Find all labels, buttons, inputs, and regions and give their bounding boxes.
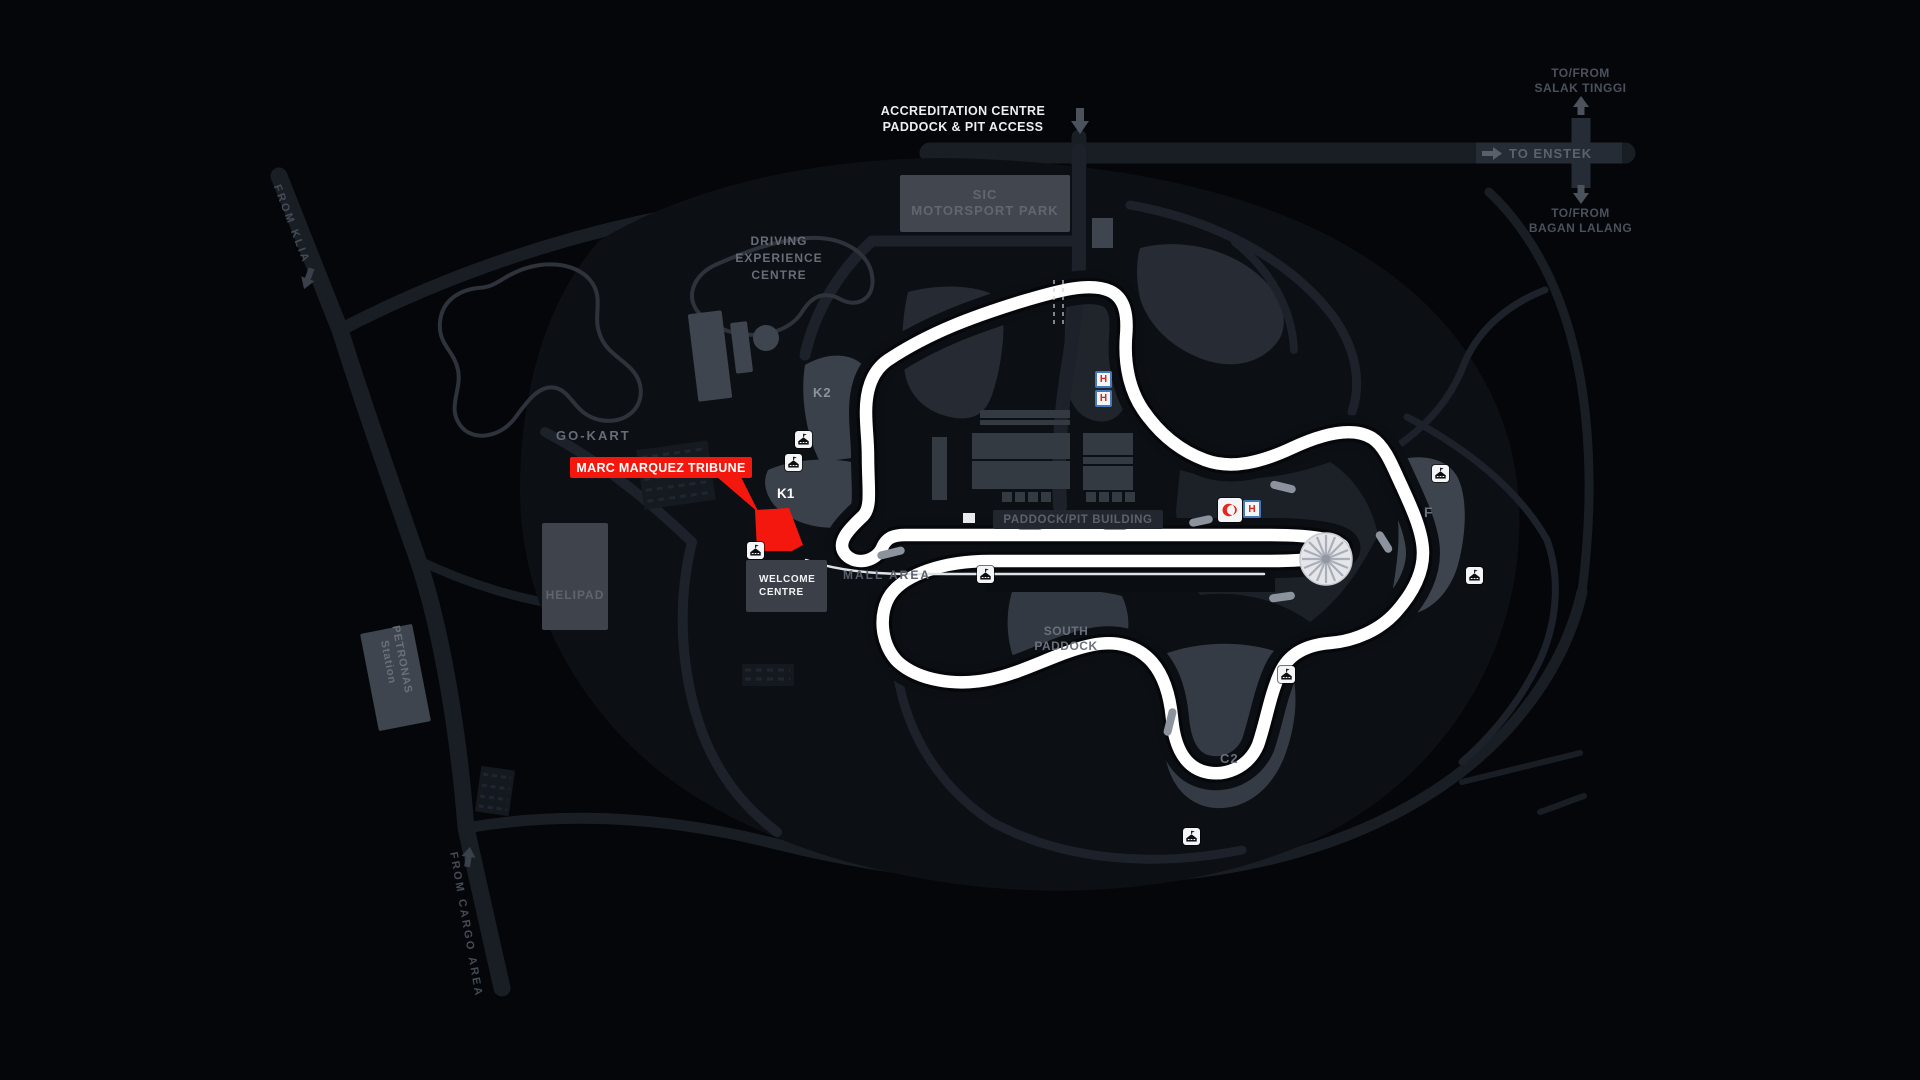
grandstand-icon[interactable] bbox=[1278, 666, 1295, 683]
helipad-label: HELIPAD bbox=[542, 588, 608, 602]
marc-marquez-tribune-label[interactable]: MARC MARQUEZ TRIBUNE bbox=[570, 457, 752, 478]
helipad-h-icon: H bbox=[1095, 390, 1112, 407]
section-k2-label: K2 bbox=[813, 385, 832, 400]
bagan-lalang-label: TO/FROM BAGAN LALANG bbox=[1503, 206, 1658, 236]
south-paddock-label: SOUTH PADDOCK bbox=[1008, 624, 1124, 654]
medical-crescent-icon bbox=[1218, 498, 1242, 522]
mall-area-label: MALL AREA bbox=[843, 568, 931, 582]
grandstand-icon[interactable] bbox=[1432, 465, 1449, 482]
salak-tinggi-label: TO/FROM SALAK TINGGI bbox=[1508, 66, 1653, 96]
pit-strip bbox=[985, 567, 1275, 592]
gokart-label: GO-KART bbox=[556, 428, 631, 443]
driving-experience-label: DRIVING EXPERIENCE CENTRE bbox=[713, 233, 845, 284]
helipad-h-icon: H bbox=[1095, 371, 1112, 388]
accreditation-label: ACCREDITATION CENTRE PADDOCK & PIT ACCES… bbox=[858, 104, 1068, 135]
helipad-h-icon: H bbox=[1243, 500, 1261, 518]
section-c2-label: C2 bbox=[1220, 751, 1239, 766]
grandstand-icon[interactable] bbox=[747, 542, 764, 559]
circuit-map-graphic bbox=[0, 0, 1920, 1080]
section-k1-label: K1 bbox=[777, 486, 794, 501]
enstek-label: TO ENSTEK bbox=[1509, 146, 1592, 161]
section-f-label: F bbox=[1424, 504, 1433, 520]
sic-motorsport-park-label: SIC MOTORSPORT PARK bbox=[900, 187, 1070, 219]
welcome-centre-box: WELCOME CENTRE bbox=[746, 560, 827, 612]
grandstand-roof-starburst bbox=[1300, 533, 1352, 585]
sic-motorsport-park-box: SIC MOTORSPORT PARK bbox=[900, 175, 1070, 232]
paddock-pit-building-band: PADDOCK/PIT BUILDING bbox=[993, 510, 1163, 529]
grandstand-icon[interactable] bbox=[785, 454, 802, 471]
sepang-circuit-map: ACCREDITATION CENTRE PADDOCK & PIT ACCES… bbox=[0, 0, 1920, 1080]
grandstand-icon[interactable] bbox=[795, 431, 812, 448]
grandstand-icon[interactable] bbox=[1466, 567, 1483, 584]
grandstand-icon[interactable] bbox=[977, 566, 994, 583]
helipad-box: HELIPAD bbox=[542, 523, 608, 630]
grandstand-icon[interactable] bbox=[1183, 828, 1200, 845]
